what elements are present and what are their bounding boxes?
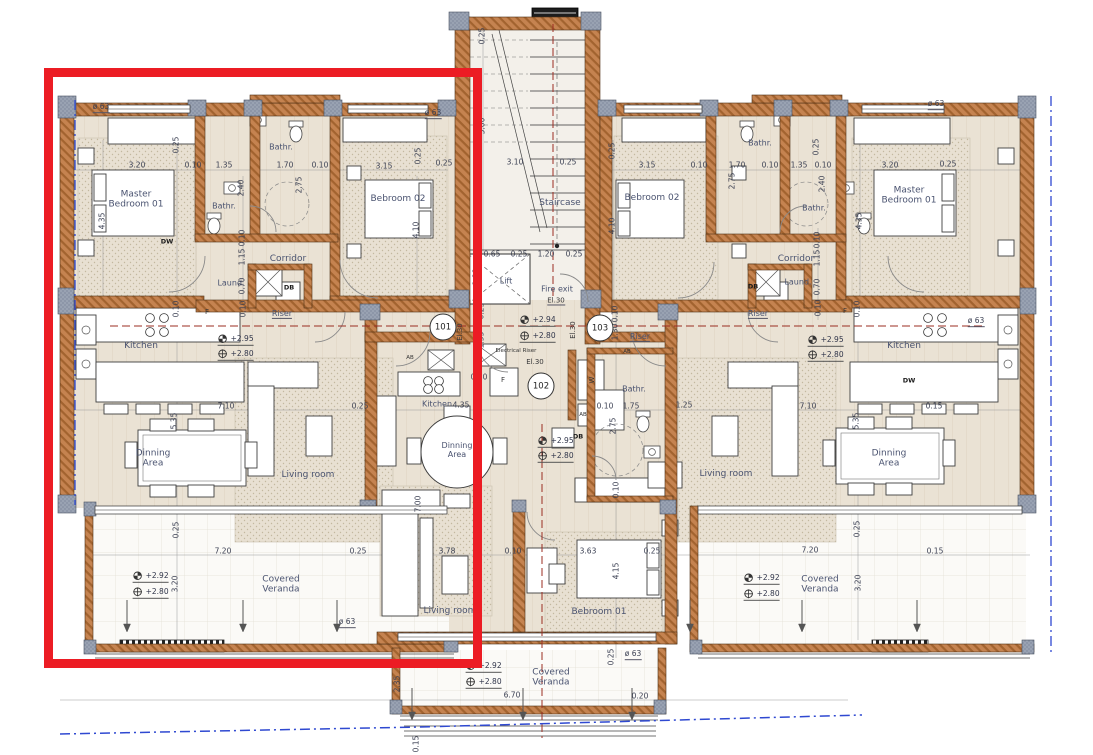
0-10-label: 0.10 [239, 230, 248, 247]
room-label-living-left: Living room [282, 470, 335, 480]
room-label-living-right: Living room [700, 469, 753, 479]
0-10-label: 0.10 [312, 162, 329, 171]
0-25-label: 0.25 [173, 522, 182, 539]
level-datum-icon [538, 436, 548, 446]
0-70-label: 0.70 [814, 279, 823, 296]
1-70-label: 1.70 [277, 162, 294, 171]
f-label: F [501, 376, 505, 384]
0-70-label: 0.70 [239, 278, 248, 295]
0-25-label: 0.25 [566, 251, 583, 260]
ab-label: AB [623, 349, 631, 355]
3-20-label: 3.20 [172, 576, 181, 593]
3-20-label: 3.20 [882, 162, 899, 171]
room-label-fire-exit: Fire exit [541, 284, 573, 293]
level-value: +2.92 [479, 662, 502, 671]
level-value: +2.80 [479, 678, 502, 687]
1-15-label: 1.15 [814, 250, 823, 267]
0-10-label: 0.10 [597, 403, 614, 412]
7-10-label: 7.10 [218, 403, 235, 412]
level-value: +2.95 [551, 437, 574, 446]
6-70-label: 6.70 [504, 692, 521, 701]
level-cross-icon [744, 589, 754, 599]
room-label-bathroom-right-inner: Bathr. [802, 203, 826, 212]
unit-tag-101: 101 [430, 314, 457, 341]
room-label-lift: Lift [500, 276, 513, 285]
el-30-label: El.30 [456, 323, 464, 341]
4-35-label: 4.35 [856, 213, 865, 230]
1-75-label: 1.75 [623, 403, 640, 412]
0-25-label: 0.25 [436, 160, 453, 169]
0-25-label: 0.25 [854, 521, 863, 538]
room-label-electrical-riser: Electrical Riser [496, 348, 537, 354]
w-label: W [588, 377, 596, 384]
0-20-label: 0.20 [632, 693, 649, 702]
3-63-label: 3.63 [580, 548, 597, 557]
room-label-corridor-right: Corridor [778, 254, 814, 264]
0-25-label: 0.25 [478, 303, 487, 320]
room-label-bathroom-left-inner: Bathr. [212, 201, 236, 210]
room-label-bedroom01-center: Bebroom 01 [571, 607, 626, 617]
0-10-label: 0.10 [691, 162, 708, 171]
5-35-label: 5.35 [853, 413, 862, 430]
0-70-label: 0.70 [471, 374, 488, 383]
4-35-label: 4.35 [453, 402, 470, 411]
0-10-label: 0.10 [854, 301, 863, 318]
room-label-veranda-center: Covered Veranda [532, 668, 569, 689]
level-cross-icon [538, 451, 548, 461]
63-label: ø 63 [93, 103, 110, 113]
2-80-label: +2.80 [808, 350, 844, 362]
0-10-label: 0.10 [505, 548, 522, 557]
2-92-label: +2.92 [133, 571, 169, 583]
level-datum-icon [218, 334, 228, 344]
0-15-label: 0.15 [413, 736, 422, 753]
3-78-label: 3.78 [439, 548, 456, 557]
0-10-label: 0.10 [814, 232, 823, 249]
db-label: DB [284, 284, 294, 291]
0-15-label: 0.15 [927, 548, 944, 557]
el-30-label: El.30 [526, 358, 544, 366]
room-label-kitchen-right: Kitchen [887, 341, 921, 351]
2-95-label: +2.95 [808, 335, 844, 347]
room-label-riser-left: Riser [272, 309, 292, 319]
3-10-label: 3.10 [507, 159, 524, 168]
2-40-label: 2.40 [819, 176, 828, 193]
7-10-label: 7.10 [800, 403, 817, 412]
0-25-label: 0.25 [608, 649, 617, 666]
room-label-master-bedroom-left: Master Bedroom 01 [108, 190, 163, 211]
annotation-layer: Master Bedroom 01Bathr.Bathr.Bebroom 02C… [0, 0, 1093, 755]
2-80-label: +2.80 [466, 677, 502, 689]
2-95-label: +2.95 [218, 334, 254, 346]
4-15-label: 4.15 [613, 563, 622, 580]
2-80-label: +2.80 [133, 587, 169, 599]
room-label-riser-right: Riser [748, 309, 768, 319]
room-label-bathroom-left-top: Bathr. [269, 142, 293, 151]
db-label: DB [748, 283, 758, 290]
0-65-label: 0.65 [484, 251, 501, 260]
0-25-label: 0.25 [560, 159, 577, 168]
room-label-riser-right-core: Riser [630, 332, 650, 342]
level-value: +2.95 [821, 336, 844, 345]
1-20-label: 1.20 [538, 251, 555, 260]
0-10-label: 0.10 [762, 162, 779, 171]
0-25-label: 0.25 [415, 148, 424, 165]
2-80-label: +2.80 [744, 589, 780, 601]
3-20-label: 3.20 [855, 575, 864, 592]
2-80-label: +2.80 [520, 331, 556, 343]
63-label: ø 63 [625, 650, 642, 660]
3-15-label: 3.15 [376, 163, 393, 172]
level-value: +2.80 [821, 351, 844, 360]
2-75-label: 2.75 [610, 418, 619, 435]
level-cross-icon [218, 349, 228, 359]
room-label-kitchen-left: Kitchen [124, 341, 158, 351]
room-label-corridor-left: Corridor [270, 254, 306, 264]
level-value: +2.80 [757, 590, 780, 599]
level-value: +2.80 [551, 452, 574, 461]
0-25-label: 0.25 [350, 548, 367, 557]
7-20-label: 7.20 [802, 547, 819, 556]
level-value: +2.80 [146, 588, 169, 597]
2-92-label: +2.92 [744, 573, 780, 585]
ab-label: AB [406, 355, 414, 361]
room-label-laundry-right: Laund. [784, 277, 811, 286]
level-datum-icon [744, 573, 754, 583]
63-label: ø 63 [425, 109, 442, 119]
5-00-label: 5.00 [479, 118, 488, 135]
db-label: DB [573, 433, 583, 440]
4-10-label: 4.10 [609, 218, 618, 235]
room-label-laundry-left: Laund. [217, 278, 244, 287]
level-datum-icon [133, 571, 143, 581]
room-label-bathroom-center: Bathr. [622, 384, 646, 393]
1-25-label: 1.25 [676, 402, 693, 411]
room-label-bedroom02-right: Bebroom 02 [624, 193, 679, 203]
2-40-label: 2.40 [238, 180, 247, 197]
2-75-label: 2.75 [296, 177, 305, 194]
room-label-master-bedroom-right: Master Bedroom 01 [881, 186, 936, 207]
0-25-label: 0.25 [511, 251, 528, 260]
1-15-label: 1.15 [239, 249, 248, 266]
dw-label: DW [161, 238, 174, 245]
level-cross-icon [520, 331, 530, 341]
0-10-label: 0.10 [173, 301, 182, 318]
0-25-label: 0.25 [813, 139, 822, 156]
level-datum-icon [520, 315, 530, 325]
f-label: F [205, 308, 209, 316]
0-25-label: 0.25 [352, 403, 369, 412]
unit-tag-102: 102 [528, 373, 555, 400]
0-25-label: 0.25 [609, 143, 618, 160]
63-label: ø 63 [928, 100, 945, 110]
level-value: +2.92 [146, 572, 169, 581]
1-55-label: 1.55 [478, 332, 487, 349]
room-label-dining-left: Dinning Area [136, 449, 171, 470]
level-cross-icon [466, 677, 476, 687]
3-15-label: 3.15 [639, 162, 656, 171]
2-35-label: 2.35 [394, 676, 403, 693]
level-value: +2.95 [231, 335, 254, 344]
4-10-label: 4.10 [413, 222, 422, 239]
0-10-label: 0.10 [240, 301, 249, 318]
level-datum-icon [808, 335, 818, 345]
1-35-label: 1.35 [216, 162, 233, 171]
4-35-label: 4.35 [99, 213, 108, 230]
level-value: +2.92 [757, 574, 780, 583]
0-25-label: 0.25 [940, 161, 957, 170]
0-25-label: 0.25 [644, 548, 661, 557]
0-25-label: 0.25 [479, 28, 488, 45]
1-70-label: 1.70 [729, 162, 746, 171]
level-cross-icon [808, 350, 818, 360]
0-10-label: 0.10 [815, 300, 824, 317]
2-75-label: 2.75 [729, 173, 738, 190]
room-label-veranda-right: Covered Veranda [801, 575, 838, 596]
1-88-label: 1.88 [473, 269, 482, 286]
room-label-dining-right: Dinning Area [872, 449, 907, 470]
2-94-label: +2.94 [520, 315, 556, 327]
ab-label: AB [579, 412, 587, 418]
7-00-label: 7.00 [415, 496, 424, 513]
el-30-label: El.30 [547, 296, 565, 305]
level-value: +2.80 [533, 332, 556, 341]
level-value: +2.80 [231, 350, 254, 359]
f-label: F [843, 307, 847, 315]
2-80-label: +2.80 [218, 349, 254, 361]
5-35-label: 5.35 [171, 413, 180, 430]
unit-tag-103: 103 [587, 315, 614, 342]
room-label-staircase: Staircase [539, 198, 580, 208]
2-92-label: +2.92 [466, 661, 502, 673]
63-label: ø 63 [339, 618, 356, 628]
7-20-label: 7.20 [215, 548, 232, 557]
0-25-label: 0.25 [173, 137, 182, 154]
63-label: ø 63 [968, 317, 985, 327]
0-15-label: 0.15 [926, 403, 943, 412]
room-label-bathroom-right-top: Bathr. [748, 138, 772, 147]
room-label-bedroom02-left: Bebroom 02 [370, 194, 425, 204]
room-label-living-center: Living room [424, 606, 477, 616]
0-10-label: 0.10 [613, 482, 622, 499]
el-30-label: El.30 [569, 321, 577, 339]
1-35-label: 1.35 [791, 162, 808, 171]
3-20-label: 3.20 [129, 162, 146, 171]
2-80-label: +2.80 [538, 451, 574, 463]
room-label-veranda-left: Covered Veranda [262, 575, 299, 596]
2-95-label: +2.95 [538, 436, 574, 448]
0-10-label: 0.10 [815, 162, 832, 171]
dw-label: DW [903, 377, 916, 384]
level-datum-icon [466, 661, 476, 671]
room-label-kitchen-center: Kitchen [422, 399, 452, 408]
0-10-label: 0.10 [185, 162, 202, 171]
level-value: +2.94 [533, 316, 556, 325]
room-label-dining-center: Dinning Area [442, 441, 473, 459]
level-cross-icon [133, 587, 143, 597]
floor-plan-canvas: Master Bedroom 01Bathr.Bathr.Bebroom 02C… [0, 0, 1093, 755]
0-10-label: 0.10 [612, 306, 621, 323]
